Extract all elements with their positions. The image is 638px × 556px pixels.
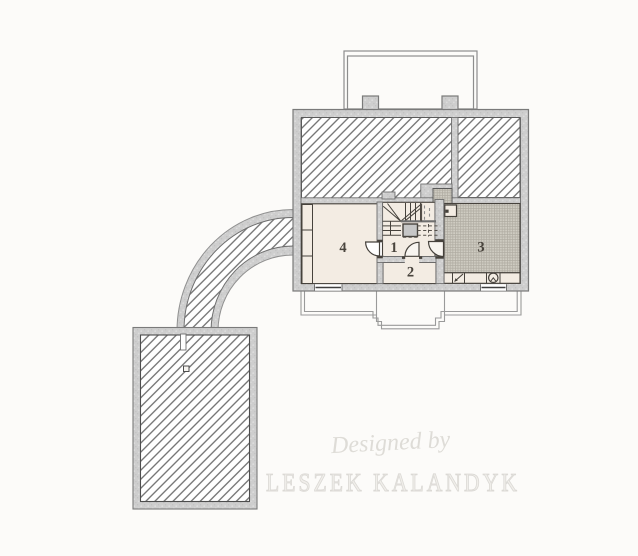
svg-text:LESZEK KALANDYK: LESZEK KALANDYK (266, 469, 520, 497)
svg-text:4: 4 (339, 240, 346, 256)
svg-text:3: 3 (477, 240, 484, 256)
svg-text:1: 1 (390, 240, 397, 256)
svg-text:2: 2 (407, 265, 414, 281)
